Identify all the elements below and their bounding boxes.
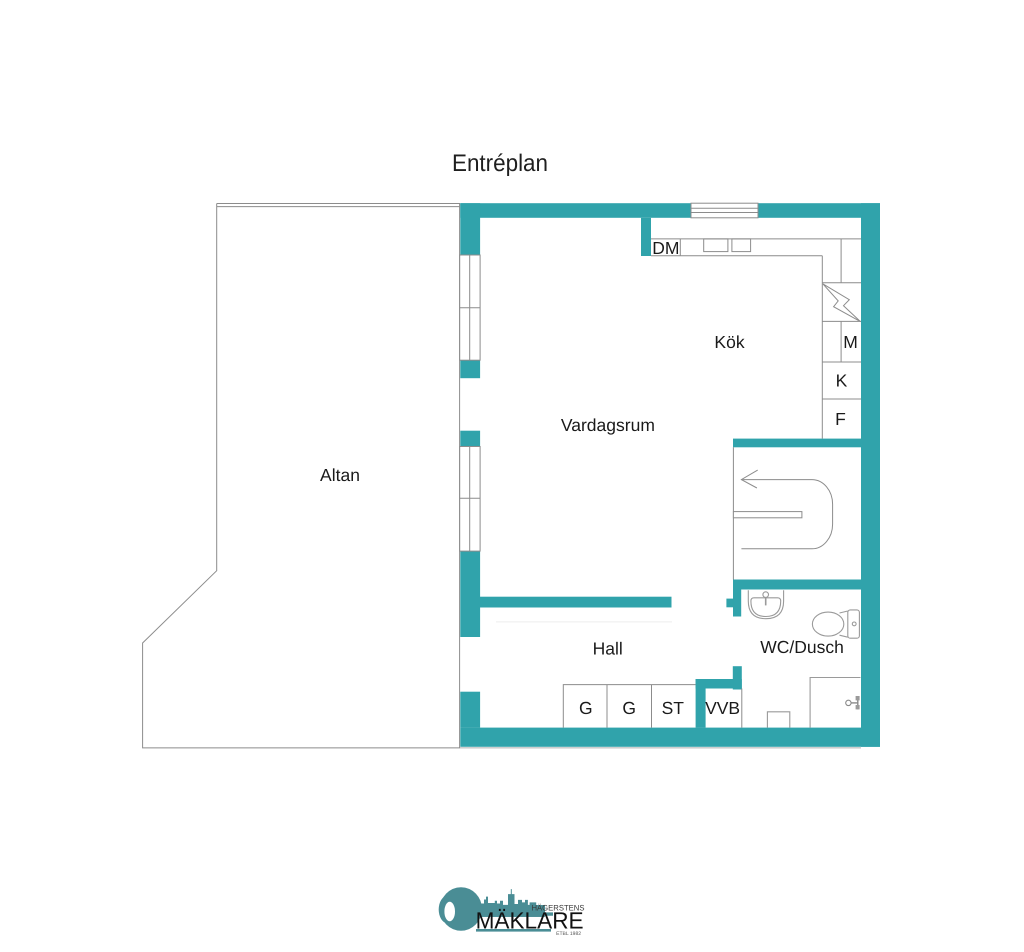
svg-text:ETBL 1982: ETBL 1982: [556, 931, 581, 937]
svg-text:WC/Dusch: WC/Dusch: [760, 637, 844, 657]
svg-text:M: M: [843, 332, 858, 352]
svg-text:Kök: Kök: [714, 332, 744, 352]
svg-text:MÄKLARE: MÄKLARE: [476, 908, 584, 934]
svg-text:ST: ST: [662, 698, 685, 718]
svg-text:Altan: Altan: [320, 465, 360, 485]
svg-text:Entréplan: Entréplan: [452, 150, 548, 177]
svg-text:Hall: Hall: [593, 639, 623, 659]
svg-text:G: G: [622, 698, 636, 718]
svg-text:Vardagsrum: Vardagsrum: [561, 415, 655, 435]
svg-text:F: F: [835, 409, 846, 429]
svg-text:VVB: VVB: [705, 698, 740, 718]
svg-text:K: K: [836, 371, 848, 391]
svg-text:G: G: [579, 698, 593, 718]
svg-text:DM: DM: [652, 238, 679, 258]
